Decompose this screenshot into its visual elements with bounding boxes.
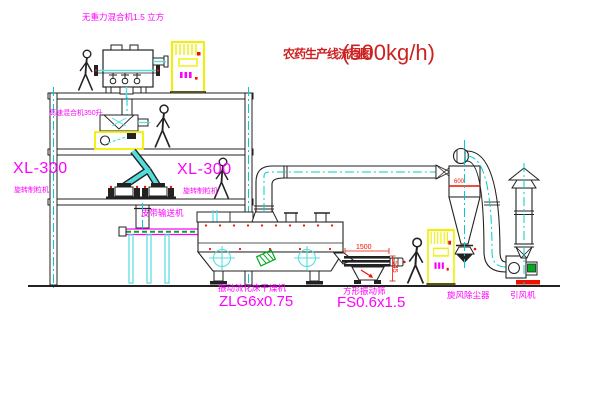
label-dryer-name: 振动流化床干燥机 bbox=[218, 284, 286, 293]
worker-figure bbox=[79, 50, 93, 90]
belt-conveyor bbox=[119, 227, 205, 283]
dim-cyclone-mark: 600 bbox=[454, 179, 464, 185]
label-granulator-left-model: XL-300 bbox=[13, 161, 68, 177]
worker-figure bbox=[408, 238, 424, 283]
label-granulator-mid-name: 旋转制粒机 bbox=[183, 188, 218, 195]
label-high-speed-mixer: 高速混合机350升 bbox=[49, 110, 103, 117]
label-sieve-model: FS0.6x1.5 bbox=[337, 295, 405, 310]
granulator-unit bbox=[106, 183, 142, 200]
worker-figure bbox=[155, 105, 170, 147]
granulator-feed-pipe bbox=[124, 151, 158, 186]
diagram-title-capacity: (500kg/h) bbox=[342, 42, 435, 64]
high-speed-mixer bbox=[95, 115, 150, 149]
dim-sieve-height: 545 bbox=[391, 261, 398, 273]
dim-sieve-length: 1500 bbox=[356, 244, 372, 251]
cad-process-flow-diagram: 无重力混合机1.5 立方 农药生产线流程图 (500kg/h) 高速混合机350… bbox=[0, 0, 600, 403]
induced-draft-fan bbox=[506, 256, 540, 285]
zero-gravity-mixer bbox=[94, 45, 168, 100]
label-granulator-left-name: 旋转制粒机 bbox=[14, 187, 49, 194]
label-fan: 引风机 bbox=[510, 291, 536, 300]
granulator-unit bbox=[140, 183, 176, 200]
mixer-drop-duct bbox=[122, 97, 132, 117]
fluid-bed-dryer bbox=[197, 210, 353, 285]
label-cyclone: 旋风除尘器 bbox=[447, 291, 490, 300]
label-dryer-model: ZLG6x0.75 bbox=[219, 294, 293, 309]
control-cabinet-lower bbox=[426, 230, 455, 284]
label-granulator-mid-model: XL-300 bbox=[177, 162, 232, 178]
control-cabinet-upper bbox=[170, 42, 206, 92]
label-zero-gravity-mixer: 无重力混合机1.5 立方 bbox=[82, 13, 164, 22]
rotary-granulators bbox=[106, 183, 176, 200]
label-belt-conveyor: 皮带输送机 bbox=[141, 209, 184, 218]
dryer-exhaust-duct bbox=[254, 165, 450, 212]
